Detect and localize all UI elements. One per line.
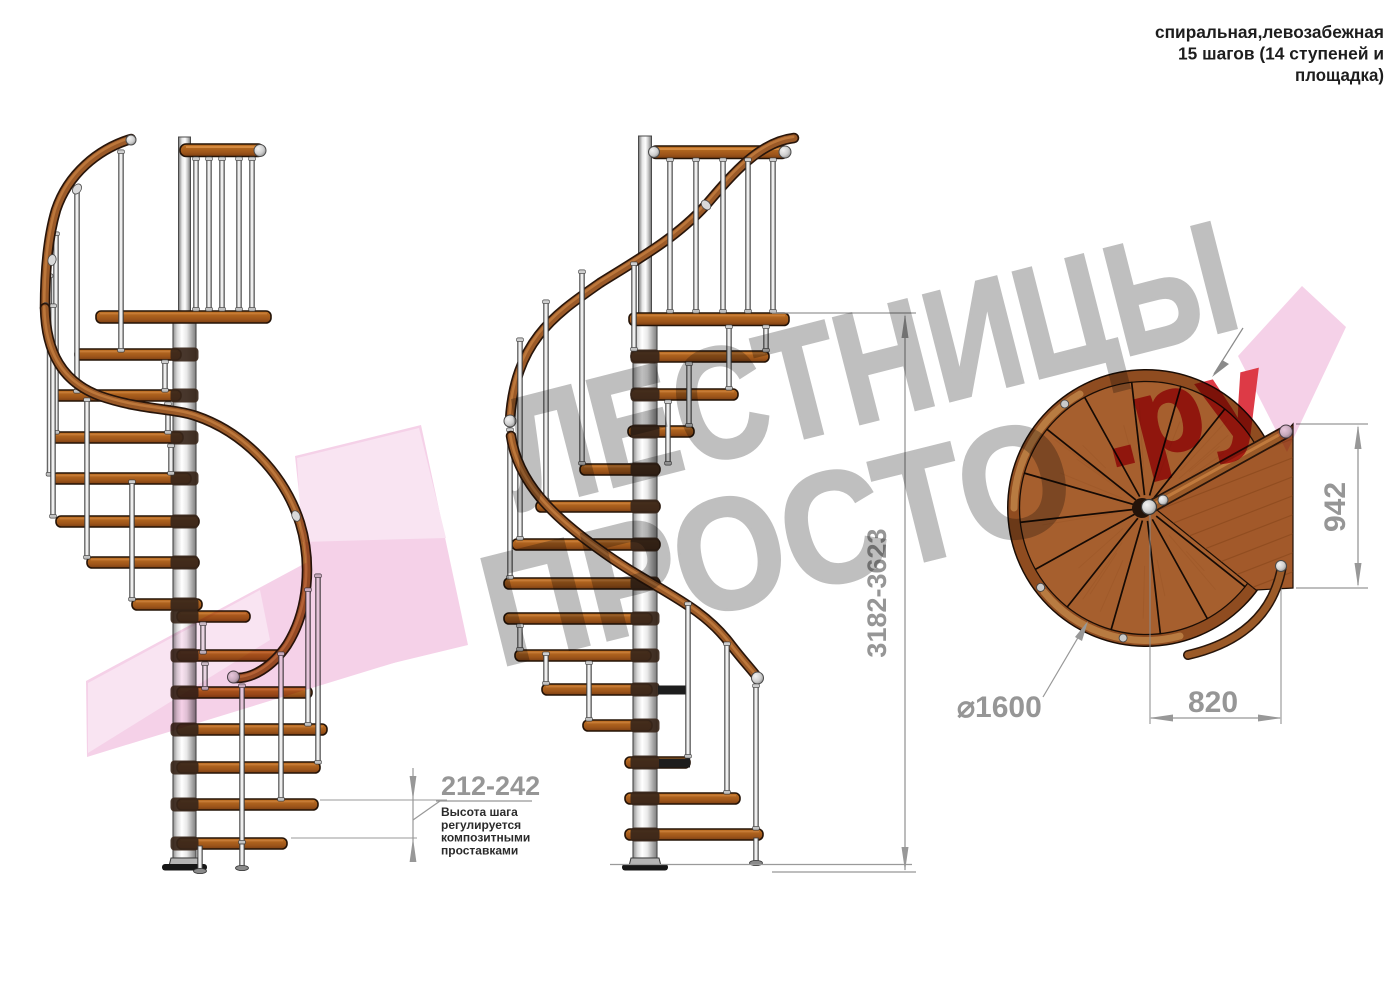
svg-text:942: 942 xyxy=(1319,482,1352,532)
svg-text:212-242: 212-242 xyxy=(441,771,540,801)
svg-text:Высота шагарегулируетсякомпози: Высота шагарегулируетсякомпозитнымипрост… xyxy=(441,805,530,857)
svg-text:⌀1600: ⌀1600 xyxy=(957,691,1042,724)
svg-text:820: 820 xyxy=(1188,686,1238,719)
